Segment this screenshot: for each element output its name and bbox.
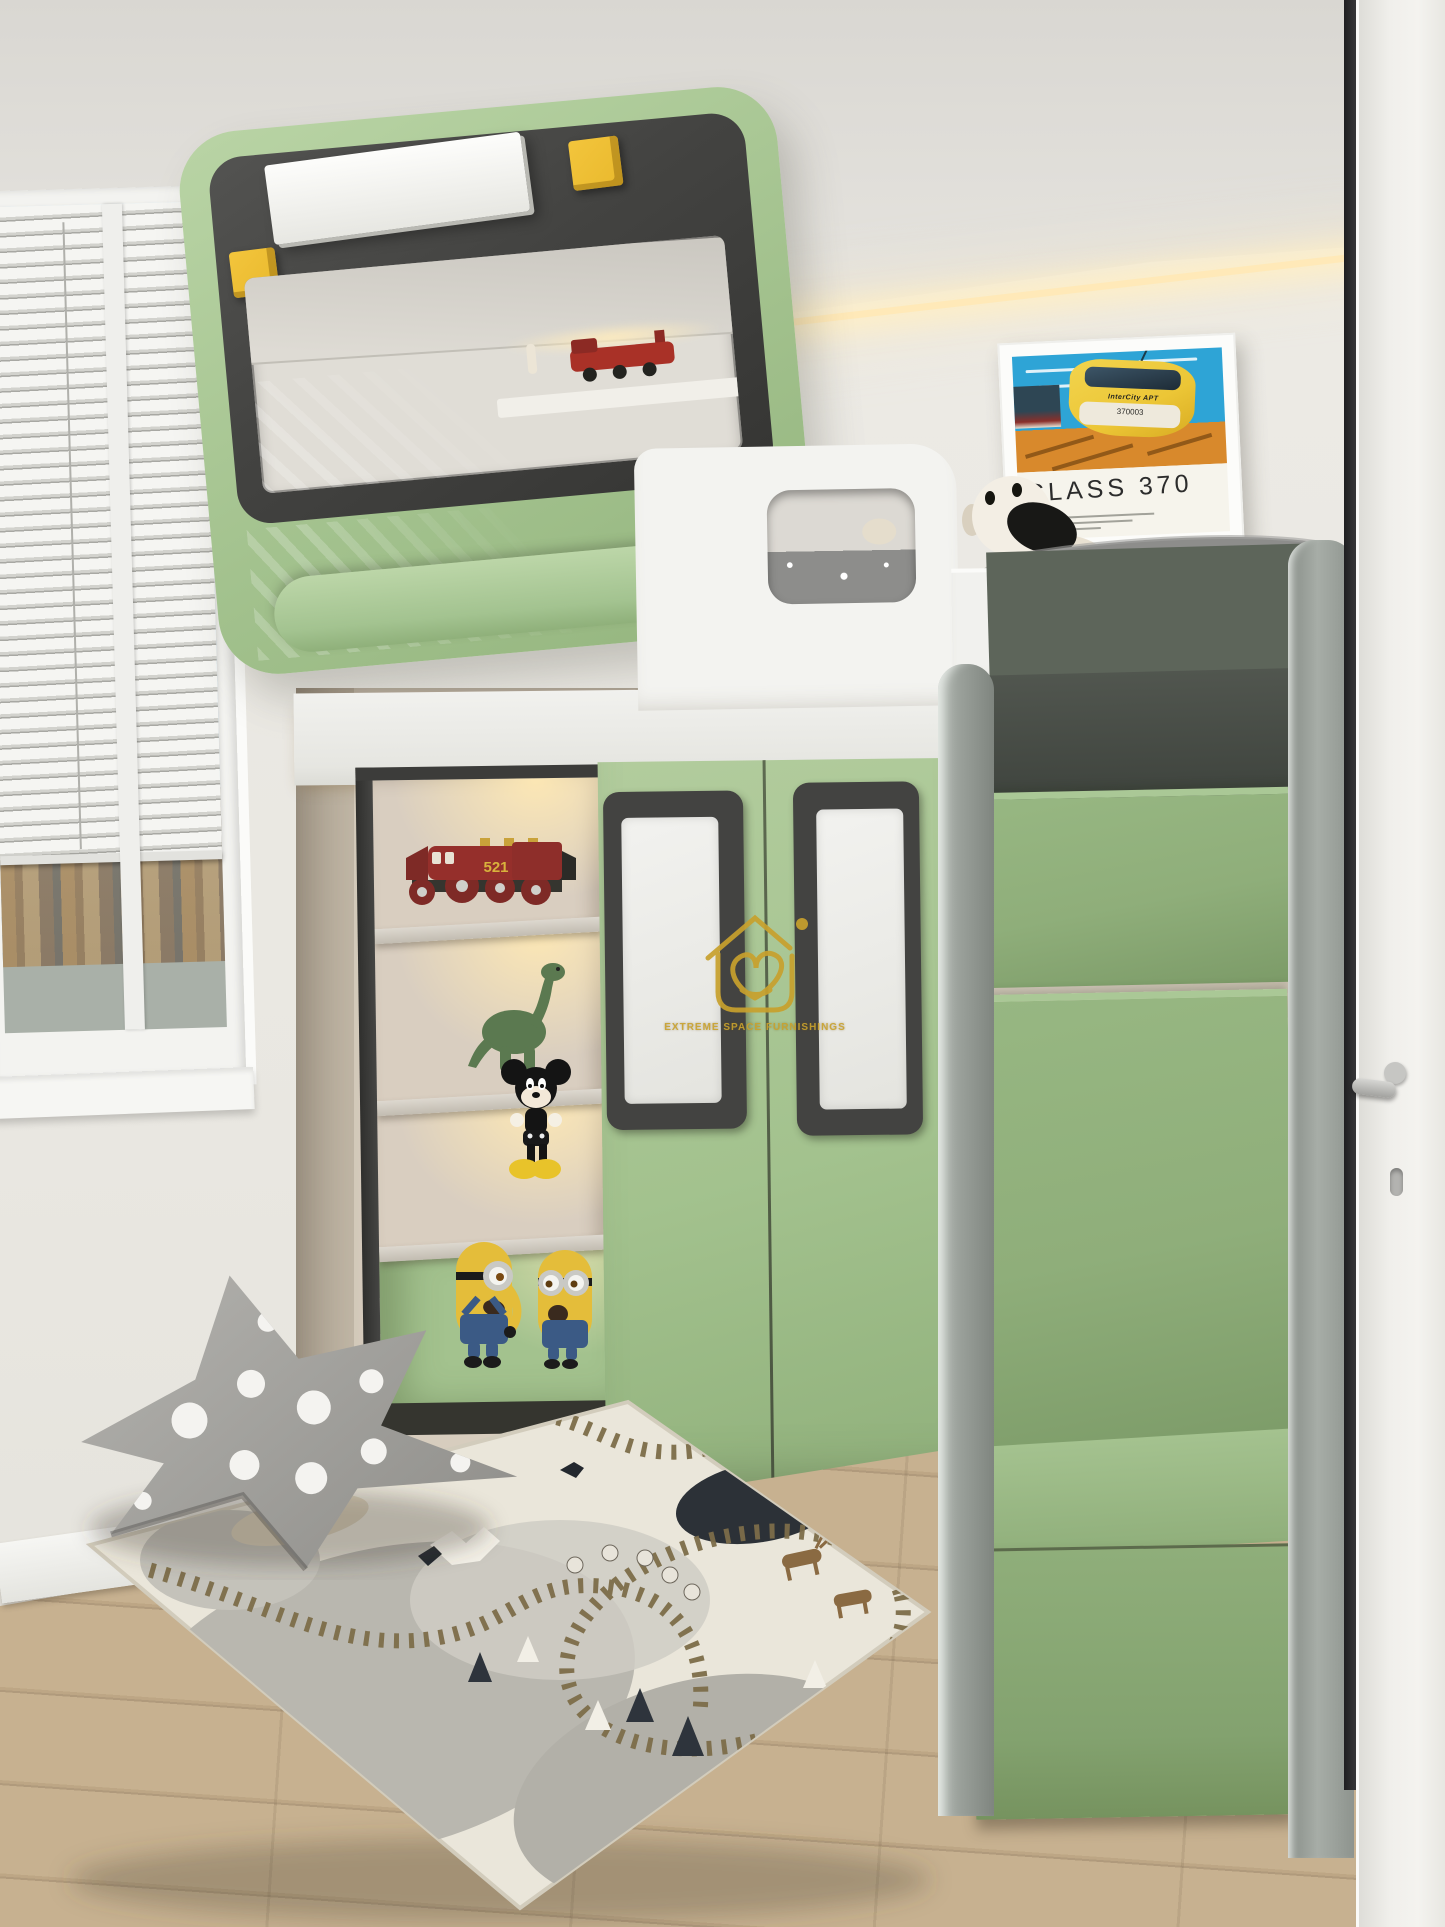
poster-train-carriage bbox=[1013, 385, 1061, 429]
poster-track-tie bbox=[1025, 435, 1095, 459]
stair-riser-2 bbox=[971, 989, 1297, 1455]
stair-drawer-front bbox=[972, 1543, 1297, 1820]
brand-watermark-text: EXTREME SPACE FURNISHINGS bbox=[650, 1022, 860, 1033]
bedding-star-dot bbox=[785, 561, 793, 569]
brand-watermark: EXTREME SPACE FURNISHINGS bbox=[690, 896, 820, 1054]
stair-riser-1 bbox=[974, 787, 1292, 989]
room-door bbox=[1356, 0, 1445, 1927]
poster-train-bumper: 370003 bbox=[1079, 401, 1181, 428]
poster-train-windshield bbox=[1084, 366, 1181, 391]
poster-artwork: InterCity APT 370003 bbox=[1012, 347, 1227, 472]
wardrobe-door-pane-right bbox=[816, 808, 907, 1109]
window-sill bbox=[0, 1067, 255, 1119]
star-pillow bbox=[40, 1250, 540, 1580]
kids-room-render: InterCity APT 370003 CLASS 370 bbox=[0, 0, 1445, 1927]
locomotive-number: 521 bbox=[483, 859, 508, 876]
plush-toy-behind-window bbox=[862, 518, 896, 545]
mirror-reflection-toy-train bbox=[559, 325, 693, 389]
poster-brand-suffix: APT bbox=[1142, 395, 1158, 403]
toy-locomotive: 521 bbox=[392, 824, 580, 916]
poster-train-nose: InterCity APT 370003 bbox=[1067, 358, 1196, 440]
poster-brand: InterCity bbox=[1107, 393, 1140, 401]
poster-train-number: 370003 bbox=[1116, 407, 1143, 417]
bed-guardrail bbox=[634, 443, 961, 711]
toy-mickey bbox=[492, 1056, 584, 1184]
bedding-star-dot bbox=[839, 571, 849, 581]
guardrail-window-cutout bbox=[766, 488, 916, 605]
train-lamp-right bbox=[568, 135, 624, 191]
door-keyhole bbox=[1390, 1168, 1403, 1196]
stair-drawer-top bbox=[969, 1429, 1295, 1560]
bedding-star-dot bbox=[883, 561, 890, 568]
stair-top-opening bbox=[975, 668, 1294, 802]
house-heart-logo-icon bbox=[690, 896, 820, 1022]
